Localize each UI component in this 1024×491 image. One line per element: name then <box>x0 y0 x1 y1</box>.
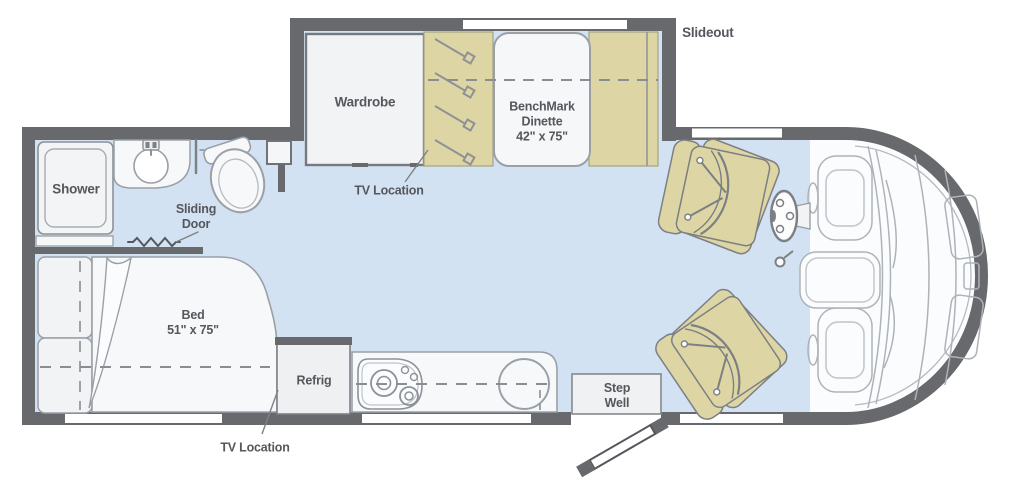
tv-location-top-label: TV Location <box>354 183 423 198</box>
bottom-window-front <box>680 414 783 423</box>
faucet-icon <box>143 140 159 150</box>
sofa-cushion-bottom <box>38 338 92 413</box>
dinette-label: BenchMark Dinette 42" x 75" <box>509 99 575 144</box>
rv-floorplan: Slideout Wardrobe BenchMark Dinette 42" … <box>0 0 1024 491</box>
engine-console <box>800 252 880 308</box>
top-window <box>692 129 782 138</box>
stove-icon <box>358 359 422 409</box>
wall-stub-2 <box>278 164 285 192</box>
slideout-label: Slideout <box>682 24 733 40</box>
bath-cabinet <box>267 141 291 164</box>
floorplan-drawing <box>0 0 1024 491</box>
refrig-label: Refrig <box>297 373 332 388</box>
sofa-cushion-top <box>38 257 92 338</box>
bottom-window-rear <box>65 414 222 423</box>
shower-label: Shower <box>52 182 99 197</box>
bath-partition-wall <box>35 247 203 254</box>
bed-label: Bed 51" x 75" <box>167 307 219 337</box>
tv-location-bottom-label: TV Location <box>220 440 289 455</box>
slideout-window <box>463 20 627 29</box>
gear-shifter-icon <box>776 258 785 267</box>
step-well-label: Step Well <box>604 380 630 410</box>
bed-area <box>38 257 277 413</box>
sink <box>114 140 190 188</box>
sliding-door-label: Sliding Door <box>176 201 216 231</box>
bottom-window-mid <box>362 414 531 423</box>
wardrobe-label: Wardrobe <box>335 95 396 110</box>
